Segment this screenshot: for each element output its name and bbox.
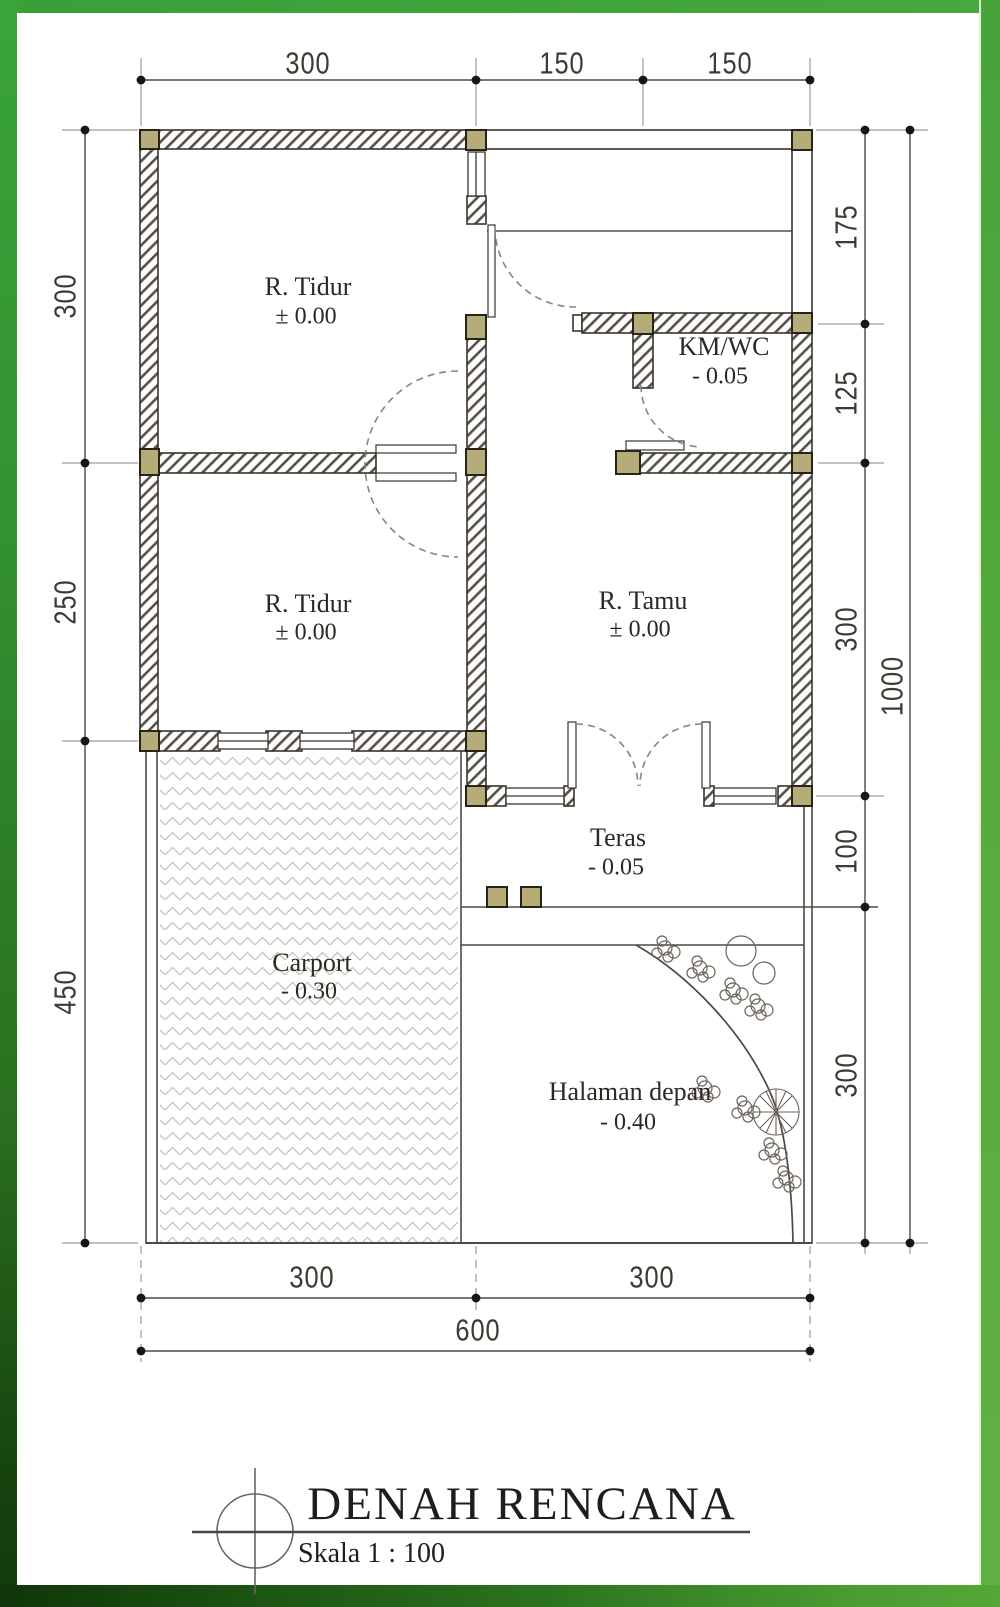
floorplan-sheet: R. Tidur ± 0.00 KM/WC - 0.05 R. Tidur ± … (0, 0, 1000, 1607)
room-label-front-yard: Halaman depan (549, 1077, 711, 1107)
dim-left-1: 300 (49, 273, 84, 318)
dim-left-2: 250 (49, 579, 84, 624)
room-level-front-yard: - 0.40 (600, 1110, 656, 1137)
dim-top-1: 300 (285, 47, 330, 82)
dim-left-3: 450 (49, 969, 84, 1014)
room-level-carport: - 0.30 (281, 979, 337, 1006)
room-label-terrace: Teras (590, 823, 646, 853)
drawing-title: DENAH RENCANA (307, 1477, 736, 1531)
dim-bottom-1: 300 (289, 1261, 334, 1296)
windows-layer (218, 152, 776, 804)
dim-right-total: 1000 (876, 656, 911, 716)
dim-right-5: 300 (830, 1052, 865, 1097)
dim-right-2: 125 (830, 370, 865, 415)
dim-bottom-2: 300 (629, 1261, 674, 1296)
drawing-scale: Skala 1 : 100 (298, 1538, 445, 1570)
room-label-living-room: R. Tamu (599, 586, 688, 616)
door-swing-arcs (365, 227, 702, 786)
garden-vegetation (652, 936, 801, 1192)
room-label-carport: Carport (272, 948, 351, 978)
dim-bottom-total: 600 (455, 1314, 500, 1349)
dim-top-2: 150 (539, 47, 584, 82)
room-level-bathroom: - 0.05 (692, 364, 748, 391)
tree-symbol (753, 1089, 799, 1135)
dim-right-1: 175 (830, 204, 865, 249)
dim-top-3: 150 (707, 47, 752, 82)
room-label-bathroom: KM/WC (679, 332, 770, 362)
dim-right-4: 100 (830, 828, 865, 873)
room-label-bedroom-1: R. Tidur (265, 272, 352, 302)
room-level-bedroom-1: ± 0.00 (275, 304, 336, 331)
room-label-bedroom-2: R. Tidur (265, 589, 352, 619)
room-level-terrace: - 0.05 (588, 855, 644, 882)
door-leaves (376, 225, 710, 788)
room-level-living-room: ± 0.00 (609, 617, 670, 644)
dim-right-3: 300 (830, 606, 865, 651)
room-level-bedroom-2: ± 0.00 (275, 620, 336, 647)
